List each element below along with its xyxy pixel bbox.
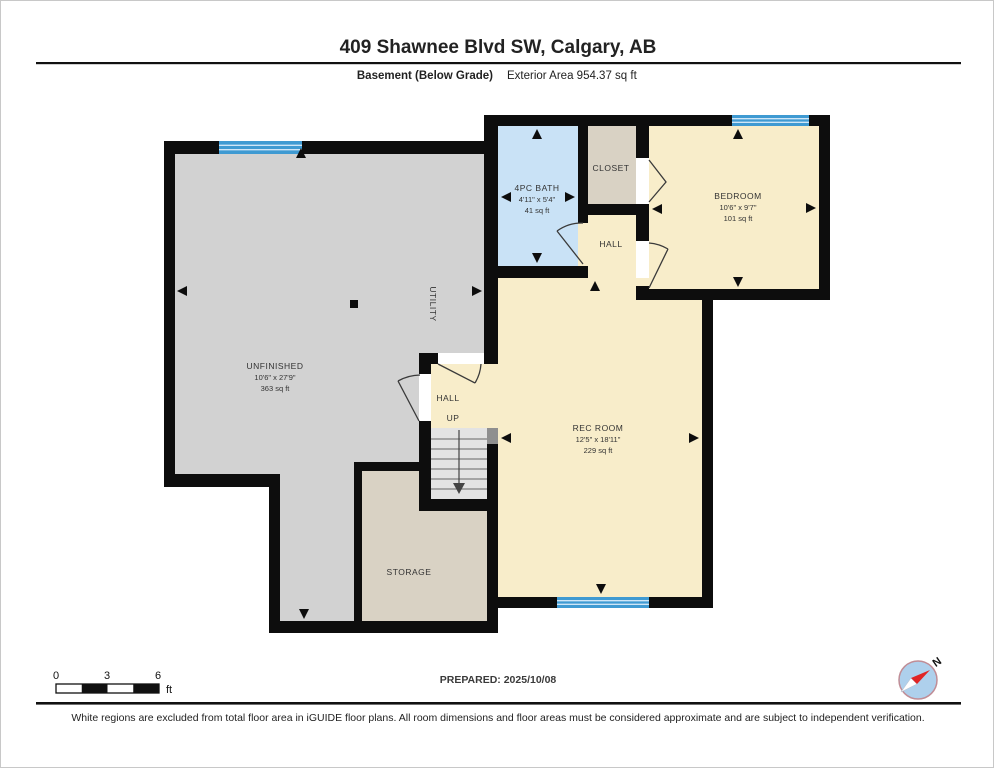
- label-bath-dims: 4'11" x 5'4": [519, 195, 556, 204]
- label-unfinished-dims: 10'6" x 27'9": [254, 373, 295, 382]
- label-stairs-up: UP: [447, 413, 460, 423]
- window-rec-room: [557, 597, 649, 608]
- footer-divider: [36, 702, 961, 705]
- scale-bar: 0 3 6 ft: [53, 670, 172, 696]
- label-hall-upper: HALL: [599, 239, 622, 249]
- label-rec-room-dims: 12'5" x 18'11": [576, 435, 621, 444]
- floor-label: Basement (Below Grade): [357, 70, 493, 82]
- exterior-area-label: Exterior Area 954.37 sq ft: [507, 70, 638, 82]
- label-bedroom: BEDROOM: [714, 191, 761, 201]
- scale-tick-0: 0: [53, 670, 59, 682]
- window-unfinished: [219, 141, 302, 154]
- support-post: [350, 300, 358, 308]
- compass: N: [899, 655, 944, 699]
- scale-unit: ft: [166, 684, 172, 696]
- scale-bar-segment: [82, 684, 108, 693]
- scale-tick-3: 3: [104, 670, 110, 682]
- window-bedroom: [732, 115, 809, 126]
- disclaimer-text: White regions are excluded from total fl…: [71, 712, 924, 724]
- scale-bar-segment: [133, 684, 159, 693]
- label-storage: STORAGE: [387, 567, 432, 577]
- label-unfinished-area: 363 sq ft: [261, 384, 291, 393]
- label-bedroom-area: 101 sq ft: [724, 214, 754, 223]
- floorplan-canvas: 409 Shawnee Blvd SW, Calgary, AB Basemen…: [1, 1, 994, 768]
- header: 409 Shawnee Blvd SW, Calgary, AB Basemen…: [36, 37, 961, 82]
- label-utility: UTILITY: [428, 286, 438, 321]
- stairs-railing-cap: [487, 428, 498, 444]
- prepared-date: PREPARED: 2025/10/08: [440, 674, 557, 686]
- scale-tick-6: 6: [155, 670, 161, 682]
- label-bath: 4PC BATH: [515, 183, 560, 193]
- label-closet: CLOSET: [592, 163, 629, 173]
- label-unfinished: UNFINISHED: [247, 361, 304, 371]
- label-rec-room: REC ROOM: [573, 423, 624, 433]
- label-bath-area: 41 sq ft: [525, 206, 551, 215]
- page-title: 409 Shawnee Blvd SW, Calgary, AB: [340, 37, 657, 58]
- header-divider: [36, 62, 961, 64]
- label-bedroom-dims: 10'6" x 9'7": [720, 203, 757, 212]
- floor-plan: UNFINISHED 10'6" x 27'9" 363 sq ft 4PC B…: [164, 115, 830, 633]
- floorplan-page: 409 Shawnee Blvd SW, Calgary, AB Basemen…: [0, 0, 994, 768]
- label-hall-lower: HALL: [436, 393, 459, 403]
- label-rec-room-area: 229 sq ft: [584, 446, 614, 455]
